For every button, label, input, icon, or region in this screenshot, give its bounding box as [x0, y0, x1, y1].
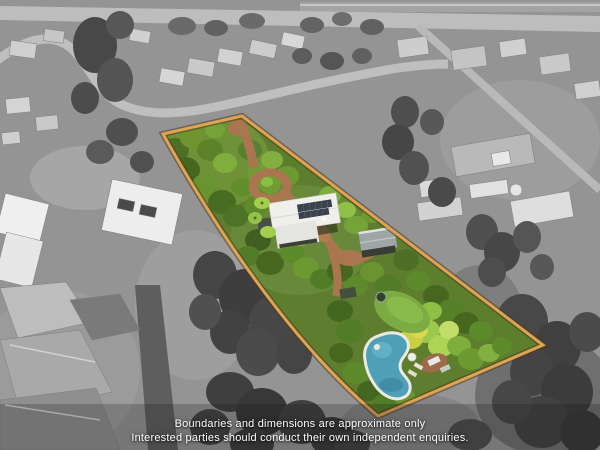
- pool-umbrella: [408, 353, 416, 361]
- bottom-shade: [0, 404, 600, 450]
- pool-umbrella: [374, 344, 380, 350]
- aerial-photo: Boundaries and dimensions are approximat…: [0, 0, 600, 450]
- trampoline: [376, 292, 386, 302]
- photo-canvas: [0, 0, 600, 450]
